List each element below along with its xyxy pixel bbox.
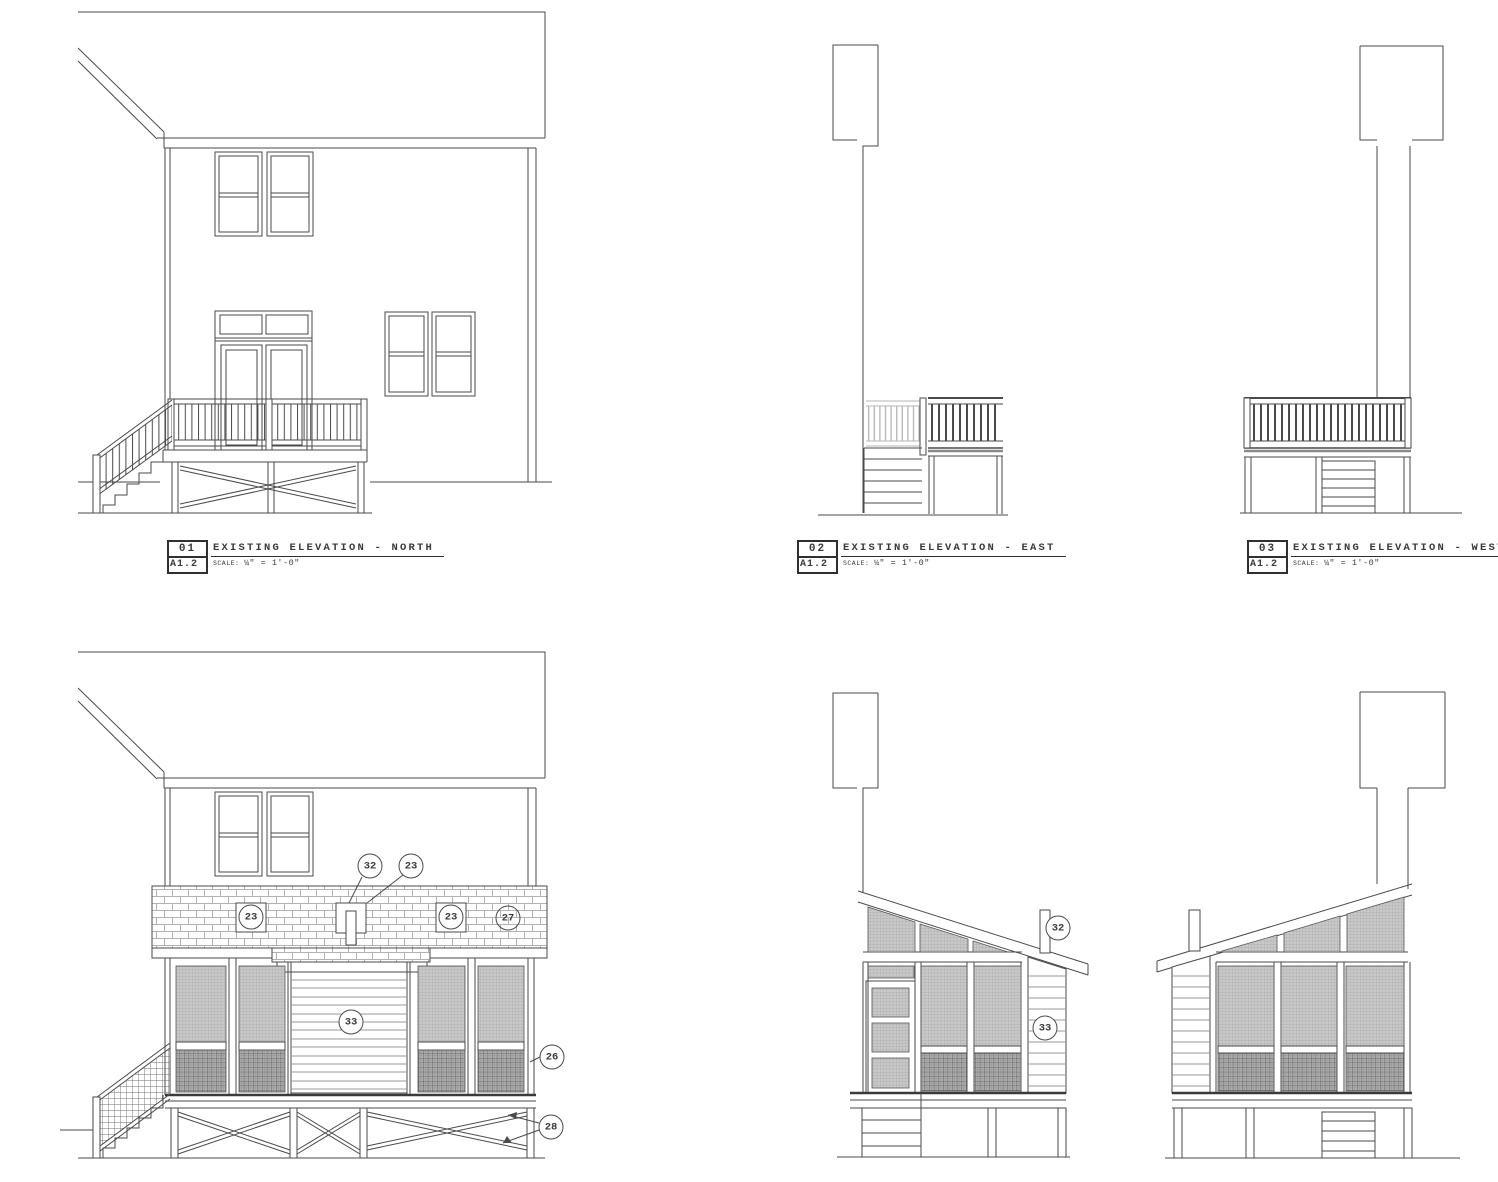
stair-railing xyxy=(93,400,172,513)
shingle-band xyxy=(152,875,547,972)
upper-window-pair xyxy=(215,152,313,236)
callout-screen-base: 26 xyxy=(540,1045,565,1070)
scale-label: SCALE: xyxy=(843,560,869,567)
callout-shingle-note: 23 xyxy=(399,854,424,879)
callout-band-tag: 27 xyxy=(496,906,521,931)
scale-note: SCALE: ¼" = 1'-0" xyxy=(211,558,444,568)
existing-west-elevation xyxy=(1240,46,1462,513)
elevation-title: EXISTING ELEVATION - EAST xyxy=(841,540,1066,557)
elevation-title: EXISTING ELEVATION - NORTH xyxy=(211,540,444,557)
scale-value: ¼" = 1'-0" xyxy=(244,558,300,568)
foundation-posts xyxy=(171,1108,534,1158)
detail-number-box: 01 A1.2 xyxy=(167,540,208,574)
detail-number-box: 03 A1.2 xyxy=(1247,540,1288,574)
vent-pipe xyxy=(1189,910,1200,951)
elevation-title: EXISTING ELEVATION - WEST xyxy=(1291,540,1498,557)
porch-railing-profile xyxy=(1244,398,1411,448)
clerestory-screen xyxy=(1347,897,1404,952)
scale-label: SCALE: xyxy=(1293,560,1319,567)
foundation-posts xyxy=(172,462,364,513)
corner-siding xyxy=(1172,956,1210,1093)
scale-value: ¼" = 1'-0" xyxy=(1324,558,1380,568)
stair-treads xyxy=(864,448,922,513)
title-block-north: 01 A1.2 EXISTING ELEVATION - NORTH SCALE… xyxy=(167,540,444,574)
existing-north-elevation xyxy=(78,12,552,513)
lattice-skirt xyxy=(1322,461,1375,513)
porch-railing-profile xyxy=(928,398,1003,448)
sheet-reference: A1.2 xyxy=(169,558,206,572)
title-block-east: 02 A1.2 EXISTING ELEVATION - EAST SCALE:… xyxy=(797,540,1066,574)
sheet-reference: A1.2 xyxy=(799,558,836,572)
vent-pipe xyxy=(346,911,356,945)
callout-vent-left: 23 xyxy=(239,905,264,930)
callout-roof-vent: 32 xyxy=(358,854,383,879)
clerestory-screen xyxy=(868,907,915,952)
porch-railing xyxy=(168,399,367,450)
scale-value: ¼" = 1'-0" xyxy=(874,558,930,568)
elevation-linework xyxy=(0,0,1498,1182)
callout-cross-bracing: 28 xyxy=(539,1115,564,1140)
upper-window-pair xyxy=(215,792,313,876)
right-window-pair xyxy=(385,312,475,396)
scale-note: SCALE: ¼" = 1'-0" xyxy=(841,558,1066,568)
callout-corner-wall-east: 33 xyxy=(1033,1016,1058,1041)
callout-roof-vent-east: 32 xyxy=(1046,916,1071,941)
detail-number: 01 xyxy=(169,542,206,558)
detail-number: 03 xyxy=(1249,542,1286,558)
stair-railing-profile xyxy=(866,401,924,446)
clerestory-screen xyxy=(1284,916,1340,952)
sheet-reference: A1.2 xyxy=(1249,558,1286,572)
detail-number: 02 xyxy=(799,542,836,558)
scale-note: SCALE: ¼" = 1'-0" xyxy=(1291,558,1498,568)
detail-number-box: 02 A1.2 xyxy=(797,540,838,574)
screen-door xyxy=(866,981,915,1093)
proposed-north-elevation xyxy=(60,652,547,1158)
clerestory-screen xyxy=(973,941,1008,952)
clerestory-screen xyxy=(920,924,968,952)
title-block-west: 03 A1.2 EXISTING ELEVATION - WEST SCALE:… xyxy=(1247,540,1498,574)
scale-label: SCALE: xyxy=(213,560,239,567)
existing-east-elevation xyxy=(818,45,1008,515)
elevation-sheet: 01 A1.2 EXISTING ELEVATION - NORTH SCALE… xyxy=(0,0,1498,1182)
stair-treads xyxy=(862,1093,921,1157)
callout-center-wall: 33 xyxy=(339,1010,364,1035)
clerestory-screen xyxy=(1222,935,1277,952)
callout-vent-right: 23 xyxy=(439,905,464,930)
proposed-west-elevation xyxy=(1157,692,1460,1158)
stair-with-grid-rail xyxy=(93,1043,170,1158)
callout-leader xyxy=(530,1057,540,1062)
lattice-skirt xyxy=(1322,1112,1375,1158)
